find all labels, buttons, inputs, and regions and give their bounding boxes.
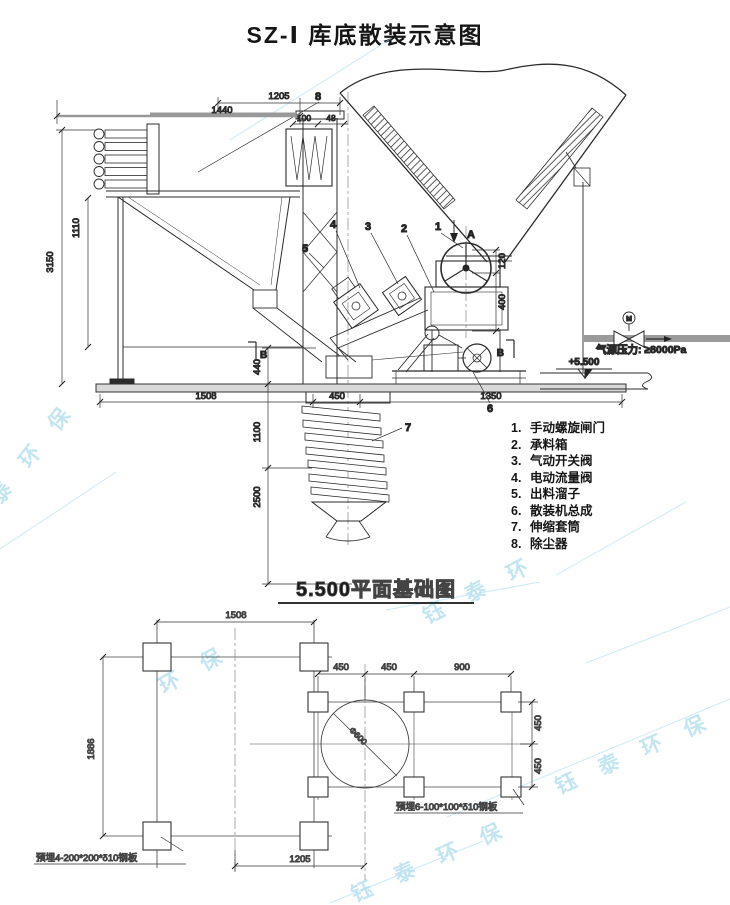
riser-pipe	[150, 111, 344, 384]
callout-5: 5	[302, 243, 308, 255]
callout-2: 2	[401, 223, 407, 235]
callout-7: 7	[405, 422, 411, 434]
elevation-drawing: 1205 1440 100 48 3150 1110 440 1100 2500…	[45, 64, 730, 587]
platform	[96, 373, 652, 392]
dim-400: 400	[497, 294, 508, 310]
telescoping-spout	[302, 392, 390, 541]
plan-drawing: 5.500平面基础图	[34, 578, 544, 880]
dim-3150: 3150	[45, 251, 56, 272]
callout-3: 3	[365, 221, 371, 233]
callout-8: 8	[315, 91, 321, 103]
dim-1100: 1100	[252, 422, 263, 442]
dim-450: 450	[329, 391, 345, 402]
plan-dim-1886: 1886	[86, 738, 97, 759]
drawing-canvas: 1205 1440 100 48 3150 1110 440 1100 2500…	[0, 0, 730, 905]
dim-100: 100	[297, 113, 311, 123]
section-markers	[248, 340, 514, 360]
dim-1110: 1110	[71, 218, 82, 238]
discharge-duct	[326, 298, 428, 378]
dim-1440: 1440	[211, 105, 232, 116]
plan-dimension-lines	[34, 622, 538, 872]
callout-4: 4	[330, 219, 337, 231]
dim-2500: 2500	[252, 486, 263, 507]
plan-dim-450c: 450	[533, 715, 544, 731]
receiving-box	[425, 287, 508, 372]
plan-dim-450d: 450	[533, 758, 544, 774]
drawing-sheet: 泰 环 保 环 保 钰 泰 环 钰 泰 环 保 钰 泰 环 保 SZ-Ⅰ 库底散…	[0, 0, 730, 905]
dim-120: 120	[497, 253, 508, 269]
dim-1508: 1508	[195, 391, 216, 402]
air-pressure-label: 气源压力: ≥8000Pa	[595, 343, 687, 356]
plan-dim-1508: 1508	[225, 610, 246, 621]
callout-1: 1	[435, 221, 441, 233]
plan-dim-450a: 450	[333, 662, 349, 673]
dim-440: 440	[252, 359, 263, 375]
section-label-right: B	[497, 348, 504, 359]
plan-note-plates6: 预埋6-100*100*δ10钢板	[396, 801, 498, 813]
left-hopper	[106, 191, 340, 384]
dim-1205: 1205	[268, 91, 289, 102]
section-label-left: B	[260, 350, 267, 361]
callout-6: 6	[487, 403, 493, 415]
pneumatic-valve	[383, 277, 422, 316]
plan-note-plates4: 预埋4-200*200*δ10钢板	[36, 852, 138, 864]
manual-gate-handwheel	[436, 243, 500, 293]
plan-title: 5.500平面基础图	[296, 578, 456, 601]
dust-collector	[94, 124, 159, 194]
valve-actuator-label: M	[626, 316, 632, 323]
plan-dim-450b: 450	[381, 662, 397, 673]
plan-dim-900: 900	[454, 662, 470, 673]
dimension-lines	[56, 97, 622, 584]
level-label: +5.500	[569, 357, 600, 368]
dim-48: 48	[326, 113, 336, 123]
air-line	[584, 312, 730, 347]
view-arrow-label: A	[467, 229, 475, 241]
plan-dim-1205: 1205	[289, 854, 310, 865]
dim-1350: 1350	[480, 391, 501, 402]
